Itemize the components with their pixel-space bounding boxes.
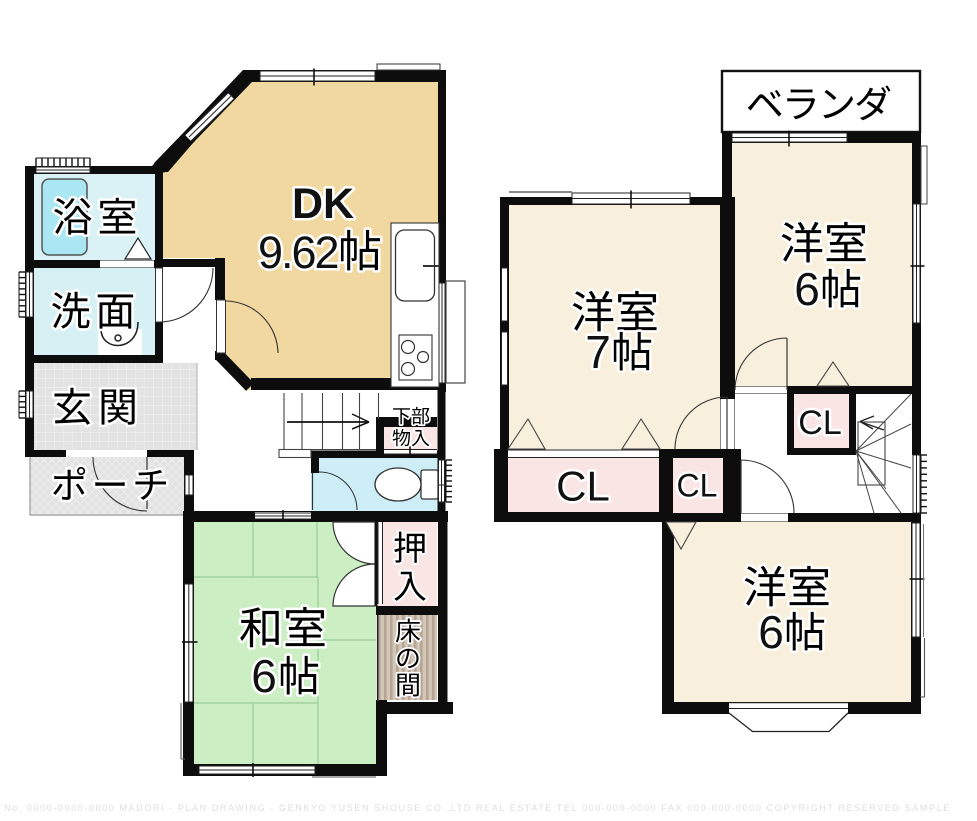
- svg-text:7: 7: [585, 326, 609, 378]
- svg-text:6: 6: [794, 263, 818, 315]
- svg-text:CL: CL: [798, 404, 841, 442]
- svg-text:No. 0000-0000-0000 MADORI - P: No. 0000-0000-0000 MADORI - PLAN DRAWING…: [4, 803, 951, 813]
- svg-text:6: 6: [251, 650, 275, 702]
- svg-text:6: 6: [758, 606, 782, 658]
- svg-text:CL: CL: [556, 463, 610, 510]
- svg-text:9.62: 9.62: [258, 227, 338, 278]
- svg-text:CL: CL: [677, 467, 718, 503]
- svg-text:DK: DK: [292, 180, 354, 228]
